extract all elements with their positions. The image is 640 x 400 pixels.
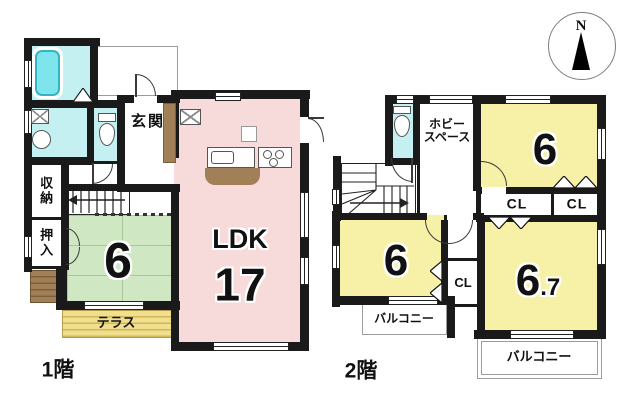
entrance-label: 玄関	[131, 114, 165, 131]
door-opening	[482, 187, 506, 194]
window	[300, 192, 309, 238]
wall	[24, 157, 92, 165]
bedroom-top-size-label: 6	[533, 126, 557, 174]
bedroom-left-size-label: 6	[384, 237, 408, 285]
kitchen-sink	[211, 151, 234, 164]
room-opening-dotted	[95, 213, 175, 216]
floorplan-page: 玄関 収納 押入 LDK 17 6 テラス 1階	[0, 0, 640, 400]
bedroom-right-size-main: 6	[516, 256, 540, 305]
door-leaf	[135, 74, 137, 97]
bedroom-right-size-label: 6.7	[516, 257, 561, 305]
window	[597, 128, 606, 160]
wall	[171, 185, 179, 351]
outdoor-steps	[30, 270, 58, 303]
bathtub-basin	[35, 50, 60, 96]
terrace-label: テラス	[97, 316, 136, 330]
window	[213, 342, 289, 351]
floor1-label: 1階	[42, 358, 75, 381]
kitchen-island	[241, 126, 257, 142]
cl2-label: CL	[567, 196, 588, 211]
door-leaf	[308, 117, 324, 119]
bedroom-right-size-fraction: .7	[540, 274, 560, 301]
door-arc-ldk	[308, 118, 324, 142]
floor2-label: 2階	[345, 359, 378, 382]
window	[505, 95, 551, 104]
cl1-label: CL	[507, 196, 528, 211]
tatami-size-label: 6	[104, 234, 132, 289]
window	[332, 245, 340, 269]
wall	[87, 103, 94, 163]
storage-label: 収納	[38, 176, 52, 206]
washbasin-icon	[32, 130, 51, 149]
toilet-tank-icon	[98, 113, 116, 122]
cl2-fold-door-icon	[553, 176, 597, 188]
kitchen-stove	[258, 147, 292, 168]
compass-needle-icon	[572, 32, 590, 70]
wall	[477, 220, 485, 332]
window	[84, 301, 144, 310]
wall	[24, 38, 100, 46]
wall	[61, 184, 131, 191]
stove-burner-icon	[269, 158, 278, 167]
balcony-left-label: バルコニー	[374, 312, 434, 325]
cl3-fold-door-icon	[430, 261, 442, 303]
washer-pan-icon	[31, 109, 49, 124]
ldk-label: LDK	[212, 225, 268, 255]
balcony-right-label: バルコニー	[507, 350, 572, 364]
hobby-space-label: ホビー スペース	[424, 118, 471, 144]
cl1-fold-door-icon	[488, 217, 532, 229]
window	[510, 330, 574, 339]
window	[597, 229, 606, 265]
wall	[385, 95, 393, 166]
wall	[117, 100, 125, 192]
window	[300, 257, 309, 285]
wall	[157, 95, 180, 103]
kitchen-back-counter	[205, 168, 260, 185]
ldk-size-label: 17	[214, 260, 265, 311]
window	[396, 95, 414, 104]
door-arc-hall	[92, 164, 113, 184]
toilet-tank-icon	[393, 106, 411, 114]
hobby-space-label-line2: スペース	[424, 131, 471, 144]
window	[215, 92, 241, 101]
door-leaf	[92, 163, 94, 184]
window	[24, 60, 32, 88]
cl3-label: CL	[454, 276, 471, 290]
refrigerator-space-icon	[180, 109, 201, 125]
window	[24, 236, 32, 258]
wall	[117, 95, 134, 103]
wall	[332, 213, 427, 220]
stove-burner-icon	[275, 150, 284, 159]
wall	[413, 98, 420, 160]
window	[332, 189, 340, 205]
oshiire-label: 押入	[38, 228, 52, 258]
door-leaf	[411, 158, 413, 183]
window	[429, 95, 473, 104]
wall	[506, 187, 606, 194]
wall	[473, 95, 481, 191]
wall	[447, 296, 455, 338]
bathroom-fold-door-icon	[73, 88, 93, 102]
